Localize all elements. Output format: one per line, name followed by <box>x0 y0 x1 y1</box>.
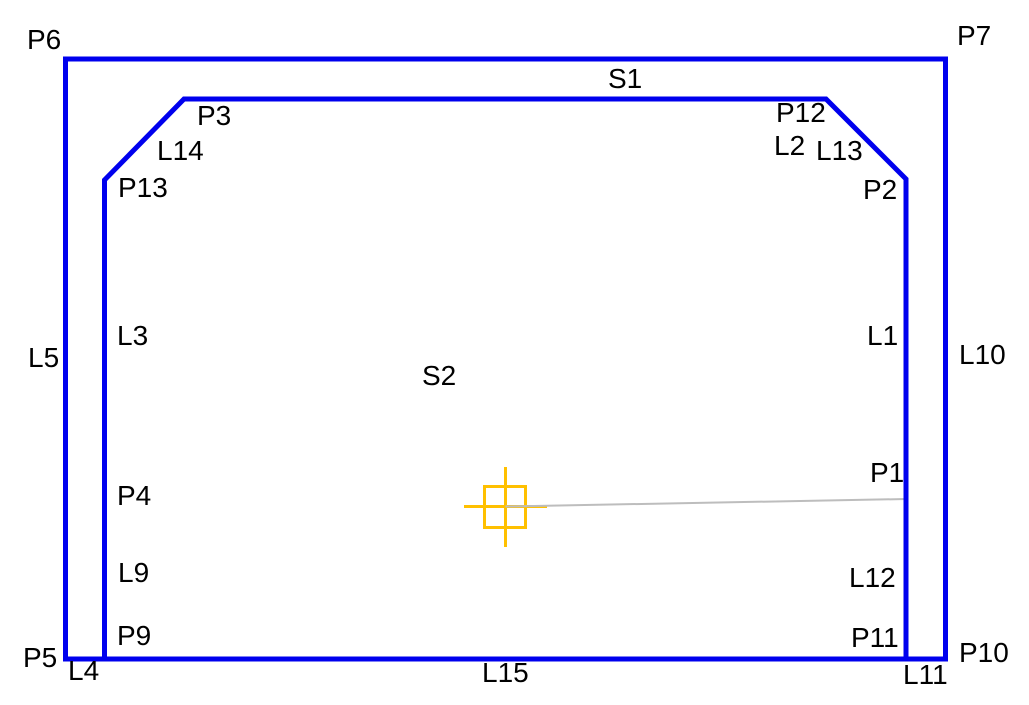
label-l1: L1 <box>867 322 898 350</box>
label-p7: P7 <box>957 22 991 50</box>
label-p11: P11 <box>851 624 899 652</box>
label-p12: P12 <box>776 99 826 127</box>
label-l13: L13 <box>816 137 863 165</box>
label-l3: L3 <box>117 322 148 350</box>
sketch-geometry-svg <box>0 0 1029 705</box>
label-l4: L4 <box>68 657 99 685</box>
label-l5: L5 <box>28 344 59 372</box>
label-s2: S2 <box>422 362 456 390</box>
label-p10: P10 <box>959 639 1009 667</box>
label-l11: L11 <box>903 661 948 689</box>
label-p3: P3 <box>197 102 231 130</box>
crosshair-marker <box>464 467 547 547</box>
reference-line[interactable] <box>506 499 907 507</box>
label-p6: P6 <box>27 26 61 54</box>
sketch-canvas: P6 P7 S1 P3 P12 L2 L13 L14 P13 P2 L5 L3 … <box>0 0 1029 705</box>
label-p13: P13 <box>118 174 168 202</box>
label-p4: P4 <box>117 482 151 510</box>
label-p1: P1 <box>870 459 904 487</box>
label-p9: P9 <box>117 622 151 650</box>
label-l10: L10 <box>959 341 1006 369</box>
label-s1: S1 <box>608 65 642 93</box>
label-l9: L9 <box>118 559 149 587</box>
label-l15: L15 <box>482 659 529 687</box>
label-p5: P5 <box>23 644 57 672</box>
label-l14: L14 <box>157 137 204 165</box>
inner-profile-polygon[interactable] <box>105 99 907 659</box>
label-l2: L2 <box>774 132 805 160</box>
label-p2: P2 <box>863 176 897 204</box>
label-l12: L12 <box>849 564 896 592</box>
